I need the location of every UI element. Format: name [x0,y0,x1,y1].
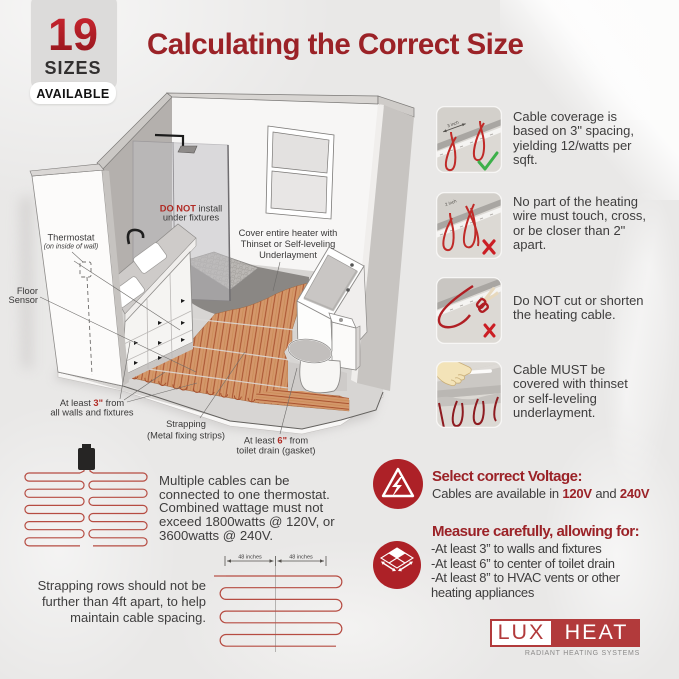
svg-text:48 inches: 48 inches [238,555,262,561]
svg-text:48 inches: 48 inches [289,555,313,561]
